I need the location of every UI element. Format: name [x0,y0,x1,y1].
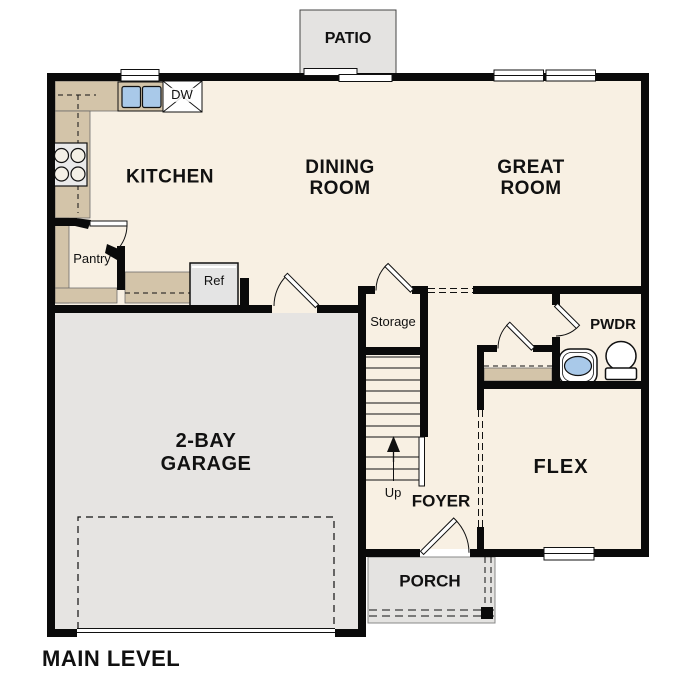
room-label-powder: PWDR [590,317,636,334]
room-label-patio: PATIO [325,30,372,48]
room-label-flex: FLEX [533,456,588,478]
room-label-foyer: FOYER [412,493,471,512]
toilet-icon [606,342,637,380]
kitchen-sink-icon [118,82,163,111]
stair-railing [419,437,425,486]
wall-stub [240,278,249,306]
room-label-garage: 2-BAY GARAGE [161,430,252,476]
stove-icon [52,143,87,186]
porch-post [481,607,493,619]
room-label-dining: DINING ROOM [305,157,375,199]
refrigerator-label: Ref [204,274,224,288]
room-label-kitchen: KITCHEN [126,168,214,189]
floorplan-canvas [0,0,687,687]
closet-shelf [484,366,552,381]
page-title: MAIN LEVEL [42,646,180,672]
room-label-great: GREAT ROOM [497,157,565,199]
patio-slider-panel [339,75,392,82]
floor-plan: KITCHEN DINING ROOM GREAT ROOM 2-BAY GAR… [0,0,687,687]
room-label-storage: Storage [370,315,416,329]
powder-sink-icon [559,349,597,385]
dishwasher-label: DW [170,88,194,102]
room-label-pantry: Pantry [73,252,111,266]
stairs-up-label: Up [385,486,402,500]
room-label-porch: PORCH [399,573,460,592]
